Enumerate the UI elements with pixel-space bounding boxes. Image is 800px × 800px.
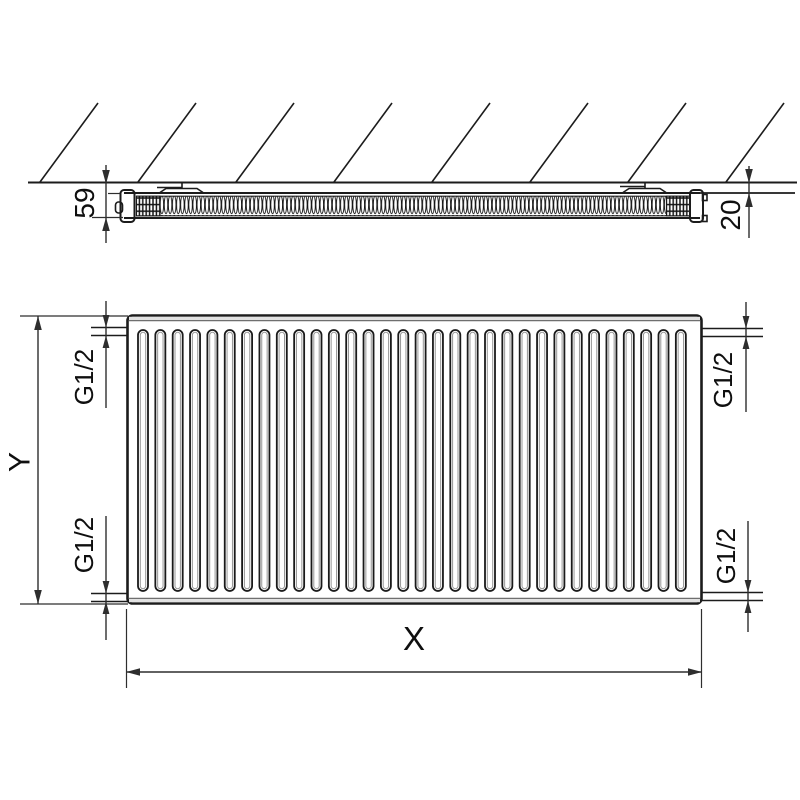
arrow-up-icon <box>103 602 110 615</box>
side-view <box>28 103 797 222</box>
front-view <box>91 316 763 604</box>
wall-hatch-icon <box>40 103 784 182</box>
dimension-height: Y <box>4 316 129 604</box>
arrow-down-icon <box>745 580 752 593</box>
arrow-up-icon <box>103 336 110 349</box>
dim-height-label: Y <box>4 452 37 472</box>
dimension-thread-bottom-right: G1/2 <box>711 521 751 632</box>
connection-stub-bottom-left <box>91 594 128 602</box>
arrow-up-icon <box>34 316 42 330</box>
connection-stub-bottom-right <box>701 593 763 601</box>
arrow-left-icon <box>126 668 140 676</box>
thread-label-top-right: G1/2 <box>708 352 738 408</box>
arrow-down-icon <box>103 581 110 594</box>
arrow-up-icon <box>102 218 110 232</box>
thread-label-bottom-left: G1/2 <box>69 517 99 573</box>
convector-end-grid-left-fill <box>137 196 161 216</box>
dim-depth-label: 59 <box>69 187 100 218</box>
dim-wall-distance-label: 20 <box>715 199 746 230</box>
arrow-down-icon <box>745 169 753 183</box>
dimension-length: X <box>126 609 702 688</box>
thread-label-bottom-right: G1/2 <box>711 528 741 584</box>
right-connection-nub-top <box>703 195 708 201</box>
dimension-wall-distance: 20 <box>715 166 753 238</box>
arrow-up-icon <box>745 193 753 207</box>
dimension-thread-top-left: G1/2 <box>69 301 109 408</box>
arrow-up-icon <box>743 337 750 350</box>
arrow-down-icon <box>743 316 750 329</box>
panel-top-band <box>129 317 700 320</box>
convector-fin-coil-icon <box>137 196 691 216</box>
radiator-technical-drawing: 59 20 <box>0 0 800 800</box>
panel-bottom-band <box>129 599 700 602</box>
arrow-down-icon <box>103 315 110 328</box>
arrow-down-icon <box>34 590 42 604</box>
convector-end-grid-right-fill <box>667 196 691 216</box>
connection-stub-top-left <box>91 328 128 336</box>
right-connection-nub-bottom <box>703 216 708 222</box>
mounting-bracket-left <box>157 183 203 193</box>
dimension-thread-bottom-left: G1/2 <box>69 516 109 640</box>
radiator-panel-body <box>128 316 702 604</box>
arrow-up-icon <box>745 601 752 614</box>
dimension-thread-top-right: G1/2 <box>708 302 749 412</box>
connection-stub-top-right <box>701 329 763 337</box>
thread-label-top-left: G1/2 <box>69 349 99 405</box>
dim-length-label: X <box>403 620 425 657</box>
arrow-right-icon <box>688 668 702 676</box>
radiator-technical-drawing-page: 59 20 <box>0 0 800 800</box>
mounting-bracket-right <box>620 182 666 193</box>
